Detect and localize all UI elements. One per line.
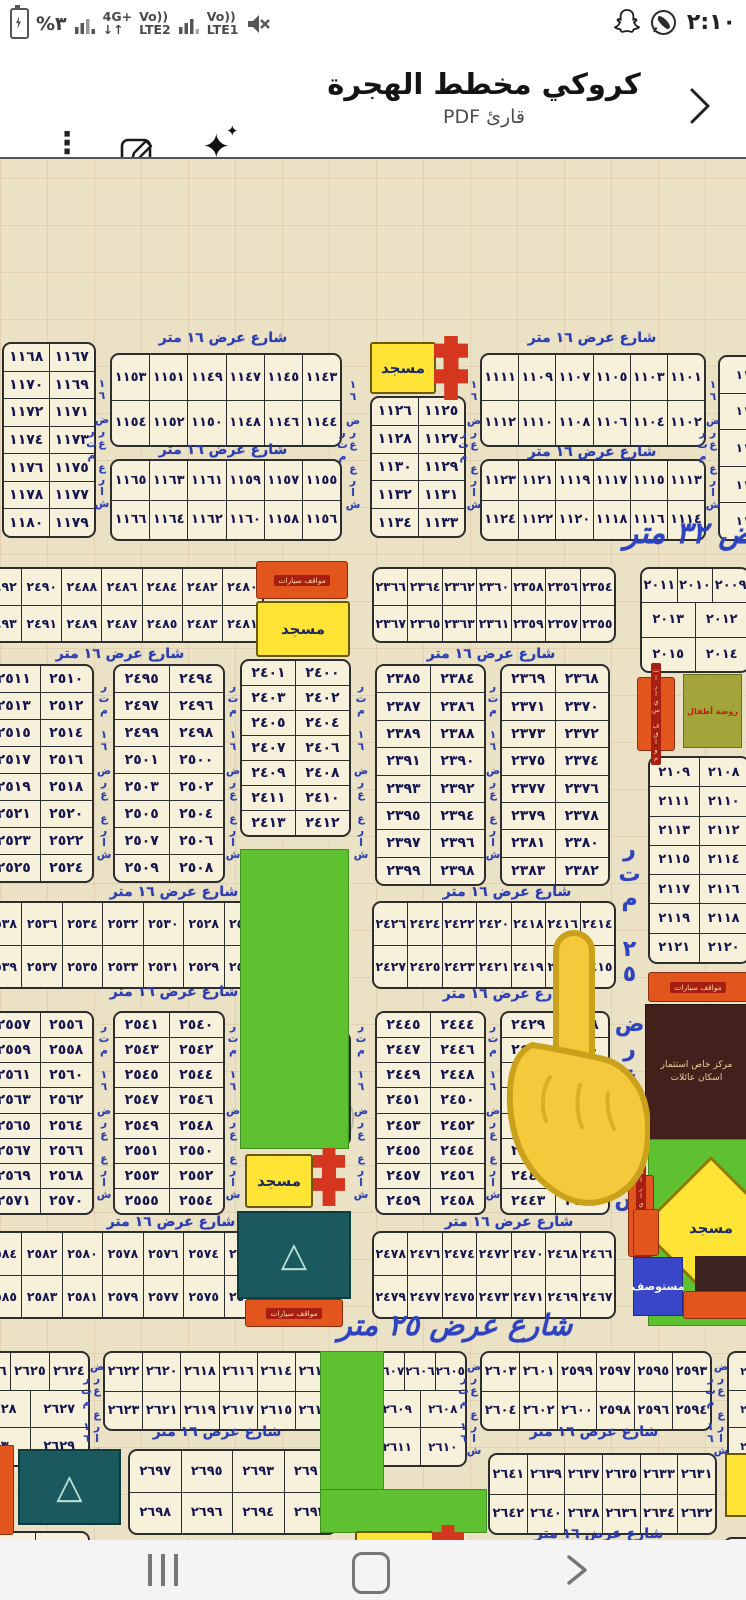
plot-cell: ٢٣٧٧ <box>502 776 555 802</box>
plot-cell: ٢٥٣٩ <box>0 946 21 988</box>
mosque-diamond-label: مسجد <box>689 1219 733 1237</box>
plot-cell: ٢٥١٧ <box>0 747 40 773</box>
plot-row: ٢٤٩٧٢٤٩٦ <box>115 692 223 719</box>
parking-box: مواقف سيارات <box>256 561 348 599</box>
snapchat-icon <box>614 8 640 36</box>
street-label: شارع عرض ١٦ متر <box>480 1425 708 1441</box>
plot-row: ٢٤٥١٢٤٥٠ <box>377 1087 484 1112</box>
plot-cell: ٢٣٩٧ <box>377 830 430 856</box>
plot-row: ٢٥٠٣٢٥٠٢ <box>115 773 223 800</box>
mosque-box: مسجد <box>256 601 350 657</box>
volte1-label: Vo))LTE1 <box>207 11 239 36</box>
volte2-label: Vo))LTE2 <box>139 11 171 36</box>
plot-block: ٢٥٨٤٢٥٨٢٢٥٨٠٢٥٧٨٢٥٧٦٢٥٧٤٢٥٧٢٢٥٨٥٢٥٨٣٢٥٨١… <box>0 1231 266 1319</box>
overflow-menu-button[interactable]: ⋮ <box>52 126 82 161</box>
plot-block: ١١٥٣١١٥١١١٤٩١١٤٧١١٤٥١١٤٣١١٥٤١١٥٢١١٥٠١١٤٨… <box>110 353 342 447</box>
park-area <box>240 849 349 1149</box>
plot-cell: ١١٥٠ <box>187 401 225 446</box>
plot-cell: ٢٤٩٦ <box>169 693 224 719</box>
plot-cell: ٢٣٥٦ <box>545 569 579 605</box>
plot-row: ١١ <box>720 466 746 503</box>
plot-row: ٢٣٧٧٢٣٧٦ <box>502 775 608 802</box>
plot-cell: ٢٥٤٦ <box>169 1088 224 1112</box>
plot-cell: ٢٥٣١ <box>143 946 183 988</box>
plot-row: ٢٥١٣٢٥١٢ <box>0 692 92 719</box>
plot-cell: ٢١١١ <box>650 787 699 815</box>
park-area <box>320 1489 487 1533</box>
street-label: شارع عرض ١٦ متر <box>352 671 366 871</box>
street-label: شارع عرض ١٦ متر <box>93 355 107 533</box>
plot-cell: ٢٣٨٢ <box>555 858 609 884</box>
plot-cell: ١١٤٧ <box>226 355 264 400</box>
plot-cell: ١١٥٨ <box>264 501 302 540</box>
street-label: شارع عرض ١٦ متر <box>344 359 358 531</box>
plot-cell: ٢٣٦١ <box>476 606 510 642</box>
plot-row: ٢٥٥٧٢٥٥٦ <box>0 1013 92 1037</box>
clinic-plot: مستوصف <box>633 1257 683 1316</box>
plot-cell: ٢٥٦٨ <box>40 1164 93 1188</box>
plot-row: ٢٤٠١٢٤٠٠ <box>242 661 349 685</box>
plot-cell: ٢٣٨٠ <box>555 830 609 856</box>
plot-cell: ١١٢٣ <box>482 461 518 500</box>
plot-row: ١١ <box>720 429 746 466</box>
plot-row: ١١٣٠١١٢٩ <box>372 453 464 481</box>
plot-row: ٢٤١١٢٤١٠ <box>242 785 349 810</box>
plot-cell: ٢٣٦٣ <box>442 606 476 642</box>
plot-block: ٢٤٧٨٢٤٧٦٢٤٧٤٢٤٧٢٢٤٧٠٢٤٦٨٢٤٦٦٢٤٧٩٢٤٧٧٢٤٧٥… <box>372 1231 616 1319</box>
plot-cell: ٢٥٩٥ <box>634 1353 672 1391</box>
plot-cell: ٢٥٥١ <box>115 1139 169 1163</box>
minaret-icon <box>434 336 468 400</box>
plot-row: ٢٤٤٧٢٤٤٦ <box>377 1037 484 1062</box>
parking-box: مواقف سيارات <box>648 972 746 1002</box>
plot-cell: ٢٠١٣ <box>642 603 695 636</box>
plot-block: ٢٦٢٥٢٥ <box>727 1351 746 1467</box>
plot-cell: ٢٤٠٤ <box>295 711 349 735</box>
plot-cell: ١١١٢ <box>482 401 518 446</box>
plot-cell: ٢٤٢٧ <box>374 946 407 988</box>
plot-cell: ١١٥٦ <box>302 501 340 540</box>
plot-cell: ٢١١٢ <box>699 817 746 845</box>
street-label: شارع عرض ١٦ متر <box>224 1015 238 1207</box>
plot-row: ٢٤٧٨٢٤٧٦٢٤٧٤٢٤٧٢٢٤٧٠٢٤٦٨٢٤٦٦ <box>374 1233 614 1275</box>
plot-cell: ٢٣٨٤ <box>430 666 484 692</box>
plot-row: ٢٣٨٣٢٣٨٢ <box>502 857 608 884</box>
plot-cell: ٢٤٨٩ <box>61 606 101 642</box>
plot-cell: ٢٥٥٢ <box>169 1164 224 1188</box>
plot-cell: ٢٦٢٢ <box>105 1353 142 1391</box>
plot-row: ٢٣٩٣٢٣٩٢ <box>377 775 484 802</box>
plot-row: ٢٤٩٥٢٤٩٤ <box>115 666 223 692</box>
plot-cell: ٢٥٠٠ <box>169 747 224 773</box>
plot-row: ٢٥٥٥٢٥٥٤ <box>115 1188 223 1213</box>
plot-cell: ٢٣٦٨ <box>555 666 609 692</box>
plot-cell: ٢٥٨٠ <box>62 1233 102 1275</box>
plot-cell: ١١١٩ <box>555 461 592 500</box>
plot-cell: ١١٣٣ <box>418 509 465 536</box>
plot-cell: ٢٥١٩ <box>0 774 40 800</box>
plot-row: ١١٦٦١١٦٤١١٦٢١١٦٠١١٥٨١١٥٦ <box>112 500 340 540</box>
plot-cell: ١١٥٥ <box>302 461 340 500</box>
street-label: شارع عرض ١٦ متر <box>352 1015 366 1207</box>
plot-cell: ٢٥١٢ <box>40 693 93 719</box>
status-bar: %٣ 4G+↓↑ Vo))LTE2 Vo))LTE1 <box>0 0 746 48</box>
app-subtitle: قارئ PDF <box>314 106 654 128</box>
plot-cell: ٢٣٧٤ <box>555 748 609 774</box>
parking-box-label: مواقف سيارات <box>651 663 661 765</box>
plot-row: ٢٥٤٥٢٥٤٤ <box>115 1062 223 1087</box>
plot-row: ٢٣٨٩٢٣٨٨ <box>377 720 484 747</box>
plot-cell: ٢٤٥١ <box>377 1088 430 1112</box>
back-button[interactable] <box>680 84 720 128</box>
plot-cell: ١١ <box>720 467 746 503</box>
plot-cell: ٢٥٥٩ <box>0 1038 40 1062</box>
nav-chevron-icon <box>558 1552 594 1588</box>
plot-cell: ٢٣٨٩ <box>377 721 430 747</box>
plot-cell: ٢٤٧٨ <box>374 1233 407 1275</box>
plot-cell: ٢٤٥٩ <box>377 1189 430 1213</box>
plot-cell: ٢٦٤١ <box>490 1455 527 1494</box>
plot-cell: ٢٦١٤ <box>257 1353 295 1391</box>
plot-cell: ٢٥ <box>729 1391 746 1428</box>
plot-cell: ٢٤٠٧ <box>242 736 295 760</box>
park-area <box>320 1351 384 1495</box>
plot-cell: ٢٣٩٩ <box>377 858 430 884</box>
plot-cell: ٢٤٠١ <box>242 661 295 685</box>
plot-row: ١١٨٠١١٧٩ <box>4 508 94 536</box>
plot-row: ٢٣٩٩٢٣٩٨ <box>377 857 484 884</box>
street-label: شارع عرض ١٦ متر <box>478 445 706 461</box>
plot-row: ٢٤٤٩٢٤٤٨ <box>377 1062 484 1087</box>
street-label: شارع عرض ١٦ متر <box>105 331 341 347</box>
plot-cell: ٢٤٩٨ <box>169 720 224 746</box>
plot-cell: ٢٦٩٣ <box>232 1451 284 1492</box>
plot-row: ٢٥١٩٢٥١٨ <box>0 773 92 800</box>
plot-row: ٢٤٥٩٢٤٥٨ <box>377 1188 484 1213</box>
plot-cell: ٢٦٠٦ <box>404 1353 434 1390</box>
plot-cell: ١١٦١ <box>187 461 225 500</box>
pointer-finger-emoji <box>498 927 650 1215</box>
plot-block: ٢٥٤١٢٥٤٠٢٥٤٣٢٥٤٢٢٥٤٥٢٥٤٤٢٥٤٧٢٥٤٦٢٥٤٩٢٥٤٨… <box>113 1011 225 1215</box>
plot-row: ٢٤٤٥٢٤٤٤ <box>377 1013 484 1037</box>
plot-cell: ٢٥٧٠ <box>40 1189 93 1213</box>
plot-cell: ١١٧٨ <box>4 482 49 509</box>
plot-cell: ١١١٧ <box>593 461 630 500</box>
plot-cell: ١١٤٣ <box>302 355 340 400</box>
plot-cell: ٢٥٢٠ <box>40 801 93 827</box>
plot-cell: ١١ <box>720 430 746 466</box>
plot-cell: ١١١٠ <box>518 401 555 446</box>
plot-cell: ٢٦٢٠ <box>142 1353 180 1391</box>
plot-row: ١١٣٢١١٣١ <box>372 480 464 508</box>
plot-row: ٢١١٣٢١١٢ <box>650 816 746 845</box>
plot-cell: ٢٥٠٥ <box>115 801 169 827</box>
plot-cell: ٢١١٤ <box>699 846 746 874</box>
plot-cell: ١١٤٥ <box>264 355 302 400</box>
plot-cell: ٢٥٢٤ <box>40 855 93 881</box>
plot-block: ٢٣٦٦٢٣٦٤٢٣٦٢٢٣٦٠٢٣٥٨٢٣٥٦٢٣٥٤٢٣٦٧٢٣٦٥٢٣٦٣… <box>372 567 616 643</box>
parking-box-label: مواقف سيارات <box>670 982 725 993</box>
plot-row: ٢١١٩٢١١٨ <box>650 903 746 932</box>
plot-cell: ٢٥٠٩ <box>115 855 169 881</box>
battery-percent: %٣ <box>36 13 67 35</box>
plot-cell: ٢٤٨٦ <box>101 569 141 605</box>
plot-row: ٢٣٦٦٢٣٦٤٢٣٦٢٢٣٦٠٢٣٥٨٢٣٥٦٢٣٥٤ <box>374 569 614 605</box>
plot-cell: ٢٦٢٨ <box>0 1391 30 1428</box>
street-label: شارع عرض ١٦ متر <box>385 1215 633 1231</box>
plot-cell: ٢٣٨٦ <box>430 693 484 719</box>
plot-cell: ٢٥١٤ <box>40 720 93 746</box>
plot-row: ٢٥٧١٢٥٧٠ <box>0 1188 92 1213</box>
plot-cell: ١١٦٣ <box>149 461 187 500</box>
plot-cell: ١١٦٠ <box>226 501 264 540</box>
parking-box: مواقف سيارات <box>245 1299 343 1327</box>
plot-cell: ٢٤٨٥ <box>142 606 182 642</box>
plot-cell: ٢٥٣٦ <box>21 903 61 945</box>
street-label: شارع عرض ١٦ متر <box>465 1355 479 1463</box>
plot-cell: ٢٤٨٢ <box>182 569 222 605</box>
plot-cell: ٢٥١٠ <box>40 666 93 692</box>
plot-block: ١١٢٦١١٢٥١١٢٨١١٢٧١١٣٠١١٢٩١١٣٢١١٣١١١٣٤١١٣٣ <box>370 396 466 538</box>
plot-cell: ١١٠١ <box>667 355 704 400</box>
plot-row: ٢٥٥٣٢٥٥٢ <box>115 1163 223 1188</box>
plot-cell: ٢٤٢٢ <box>442 903 476 945</box>
plot-row: ٢٦١١٢٦١٠ <box>375 1427 465 1465</box>
plot-cell: ٢٤٢٥ <box>407 946 441 988</box>
plot-cell: ٢٦٩٧ <box>130 1451 181 1492</box>
plot-cell: ١١٥١ <box>149 355 187 400</box>
plot-cell: ٢٥٣٤ <box>62 903 102 945</box>
plot-row: ٢٥٢٥٢٥٢٤ <box>0 854 92 881</box>
plot-cell: ٢٤٤٨ <box>430 1063 484 1087</box>
plot-row: ٢٥٦٩٢٥٦٨ <box>0 1163 92 1188</box>
plot-cell: ٢٣٧٦ <box>555 776 609 802</box>
plot-cell: ٢٣٥٩ <box>511 606 545 642</box>
plot-cell: ٢٤٥٥ <box>377 1139 430 1163</box>
plot-cell: ٢٣٦٢ <box>442 569 476 605</box>
plot-cell: ٢٣٦٠ <box>476 569 510 605</box>
plot-cell: ٢٦٣٥ <box>602 1455 640 1494</box>
plot-cell: ٢٥٦٩ <box>0 1164 40 1188</box>
plot-row: ٢٣٧٩٢٣٧٨ <box>502 802 608 829</box>
plot-row: ١١١١١١٠٩١١٠٧١١٠٥١١٠٣١١٠١ <box>482 355 704 400</box>
plot-cell: ٢٥٣٢ <box>102 903 142 945</box>
plot-row: ٢٣٧٥٢٣٧٤ <box>502 747 608 774</box>
plot-row: ٢٦٠٩٢٦٠٨ <box>375 1390 465 1428</box>
plot-block: ١١١١١١٠٩١١٠٧١١٠٥١١٠٣١١٠١١١١٢١١١٠١١٠٨١١٠٦… <box>480 353 706 447</box>
plot-row: ٢٥٦٥٢٥٦٤ <box>0 1113 92 1138</box>
plot-cell: ٢٤٦٨ <box>545 1233 579 1275</box>
plot-row: ٢٤١٣٢٤١٢ <box>242 810 349 835</box>
plot-cell: ١١٧١ <box>49 399 95 426</box>
plot-row: ٢٣٦٧٢٣٦٥٢٣٦٣٢٣٦١٢٣٥٩٢٣٥٧٢٣٥٥ <box>374 605 614 642</box>
plot-cell: ١١٧٩ <box>49 509 95 536</box>
plot-row: ٢٤٩٢٢٤٩٠٢٤٨٨٢٤٨٦٢٤٨٤٢٤٨٢٢٤٨٠ <box>0 569 262 605</box>
plot-cell: ٢٦٣٧ <box>564 1455 602 1494</box>
plot-cell: ٢٥٢١ <box>0 801 40 827</box>
plot-cell: ٢٥٢٣ <box>0 828 40 854</box>
plot-cell: ١١١٥ <box>630 461 667 500</box>
plot-cell: ٢١١٧ <box>650 875 699 903</box>
plot-cell: ٢٤٠٦ <box>295 736 349 760</box>
plot-cell: ١١٧٧ <box>49 482 95 509</box>
phone-screen: { "status": { "percent": "%٣", "net_a1":… <box>0 0 746 1600</box>
plot-cell: ٢٥٦٤ <box>40 1114 93 1138</box>
plot-cell: ٢٤٠٠ <box>295 661 349 685</box>
plot-cell: ٢٤٨٤ <box>142 569 182 605</box>
plot-row: ٢٥٨٤٢٥٨٢٢٥٨٠٢٥٧٨٢٥٧٦٢٥٧٤٢٥٧٢ <box>0 1233 264 1275</box>
plot-cell: ٢٦٢٧ <box>30 1391 89 1428</box>
plot-cell: ٢٣٥٥ <box>580 606 614 642</box>
signal-bars-icon <box>74 13 96 35</box>
plot-row: ١١٧٦١١٧٥ <box>4 453 94 481</box>
plot-cell: ٢٥٩٧ <box>596 1353 634 1391</box>
plot-row: ٢٣٦٩٢٣٦٨ <box>502 666 608 692</box>
kindergarten-plot: روضة أطفال <box>683 674 742 748</box>
plot-cell: ٢٤٩٢ <box>0 569 21 605</box>
plot-cell: ٢٤٧٢ <box>476 1233 510 1275</box>
street-label: شارع عرض ١٦ متر <box>704 359 718 531</box>
pdf-page[interactable]: © ١١٦٨١١٦٧١١٧٠١١٦٩١١٧٢١١٧١١١٧٤١١٧٣١١٧٦١١… <box>0 157 746 1542</box>
plot-cell: ٢٥٥٣ <box>115 1164 169 1188</box>
plot-cell: ٢٣٩٢ <box>430 776 484 802</box>
parking-box-label: مواقف سيارات <box>274 575 329 586</box>
plot-row: ٢٣٧٣٢٣٧٢ <box>502 720 608 747</box>
plot-cell: ٢٣٥٨ <box>511 569 545 605</box>
school-plot: △ <box>18 1449 121 1525</box>
plot-cell: ١١٦٦ <box>112 501 149 540</box>
plot-cell: ٢٦٢٣ <box>105 1392 142 1430</box>
plot-cell: ٢١١٠ <box>699 787 746 815</box>
plot-cell: ٢٦٠٤ <box>482 1392 519 1430</box>
plot-cell: ٢٠٠٩ <box>712 569 746 602</box>
plot-row: ٢٥١٥٢٥١٤ <box>0 719 92 746</box>
plot-cell: ٢٣٨٨ <box>430 721 484 747</box>
plot-cell: ٢٣٨٧ <box>377 693 430 719</box>
plot-row: ٢٦٠٣٢٦٠١٢٥٩٩٢٥٩٧٢٥٩٥٢٥٩٣ <box>482 1353 710 1391</box>
plot-cell: ٢٣٧٨ <box>555 803 609 829</box>
plot-cell: ٢٠١٥ <box>642 638 695 671</box>
plot-block: ٢٦٠٧٢٦٠٦٢٦٠٥٢٦٠٩٢٦٠٨٢٦١١٢٦١٠ <box>373 1351 467 1467</box>
app-header: كروكي مخطط الهجرة قارئ PDF ✦✦ ⋮ <box>0 48 746 158</box>
plot-cell: ٢٥١٨ <box>40 774 93 800</box>
plot-cell: ٢٣٦٤ <box>407 569 441 605</box>
plot-cell: ٢٠١٢ <box>695 603 746 636</box>
plot-row: ٢٥٢٣٢٥٢٢ <box>0 827 92 854</box>
plot-cell: ٢٥٥٠ <box>169 1139 224 1163</box>
plot-cell: ٢٥٨٢ <box>21 1233 61 1275</box>
plot-row: ٢٥٠٩٢٥٠٨ <box>115 854 223 881</box>
plot-block: ٢٦٢٢٢٦٢٠٢٦١٨٢٦١٦٢٦١٤٢٦١٢٢٦٢٣٢٦٢١٢٦١٩٢٦١٧… <box>103 1351 335 1431</box>
plot-cell: ٢٣٦٦ <box>374 569 407 605</box>
plot-cell: ٢٦٠٣ <box>482 1353 519 1391</box>
plot-cell: ٢٥١٦ <box>40 747 93 773</box>
plot-block: ٢٤٩٢٢٤٩٠٢٤٨٨٢٤٨٦٢٤٨٤٢٤٨٢٢٤٨٠٢٤٩٣٢٤٩١٢٤٨٩… <box>0 567 264 643</box>
plot-row: ٢٣٩١٢٣٩٠ <box>377 747 484 774</box>
plot-row: ٢٣٨٥٢٣٨٤ <box>377 666 484 692</box>
street-label: شارع عرض ١٦ متر <box>105 443 341 459</box>
plot-cell: ٢٤٥٠ <box>430 1088 484 1112</box>
plot-cell: ١١٠٦ <box>593 401 630 446</box>
plot-cell: ٢٥٢٩ <box>183 946 223 988</box>
plot-cell: ٢٣٩٠ <box>430 748 484 774</box>
plot-cell: ٢٤٥٨ <box>430 1189 484 1213</box>
plot-cell: ١١٦٩ <box>49 372 95 399</box>
street-label: شارع عرض ١٦ متر <box>465 359 479 531</box>
plot-row: ٢٤٩٣٢٤٩١٢٤٨٩٢٤٨٧٢٤٨٥٢٤٨٣٢٤٨١ <box>0 605 262 642</box>
street-label: شارع عرض ١٦ متر <box>484 1015 498 1207</box>
recents-button[interactable] <box>148 1554 178 1586</box>
plot-block: ٢٣٨٥٢٣٨٤٢٣٨٧٢٣٨٦٢٣٨٩٢٣٨٨٢٣٩١٢٣٩٠٢٣٩٣٢٣٩٢… <box>375 664 486 886</box>
plot-row: ٢٠١٣٢٠١٢ <box>642 602 746 636</box>
plot-block: ٢٤٠١٢٤٠٠٢٤٠٣٢٤٠٢٢٤٠٥٢٤٠٤٢٤٠٧٢٤٠٦٢٤٠٩٢٤٠٨… <box>240 659 351 837</box>
plot-cell: ٢٥٤٤ <box>169 1063 224 1087</box>
plot-cell: ١١١٣ <box>667 461 704 500</box>
plot-cell: ٢٥٦٠ <box>40 1063 93 1087</box>
plot-cell: ٢٤٠٩ <box>242 761 295 785</box>
clock: ٢:١٠ <box>687 10 736 35</box>
plot-cell: ٢٥٦٧ <box>0 1139 40 1163</box>
plot-cell: ١١٧٠ <box>4 372 49 399</box>
plot-cell: ٢٥٢٥ <box>0 855 40 881</box>
plot-row: ١١٥٣١١٥١١١٤٩١١٤٧١١٤٥١١٤٣ <box>112 355 340 400</box>
plot-row: ٢٥٦٣٢٥٦٢ <box>0 1087 92 1112</box>
plot-row: ١١٦٥١١٦٣١١٦١١١٥٩١١٥٧١١٥٥ <box>112 461 340 500</box>
mute-icon <box>245 11 271 37</box>
plot-cell: ٢٥١٣ <box>0 693 40 719</box>
plot-cell: ٢٣٥٧ <box>545 606 579 642</box>
plot-row: ٢١١١٢١١٠ <box>650 786 746 815</box>
plot-row: ٢٤٥٣٢٤٥٢ <box>377 1113 484 1138</box>
street-label: شارع عرض ١٦ متر <box>478 331 706 347</box>
clinic-plot-label: مستوصف <box>631 1280 684 1293</box>
plot-cell: ٢٥٣٨ <box>0 903 21 945</box>
plot-cell: ٢٥٥٧ <box>0 1013 40 1037</box>
plot-row: ١١٢٦١١٢٥ <box>372 398 464 425</box>
plot-row: ١١٢٣١١٢١١١١٩١١١٧١١١٥١١١٣ <box>482 461 704 500</box>
plot-cell: ١١٠٧ <box>555 355 592 400</box>
plot-cell: ٢١١٣ <box>650 817 699 845</box>
plot-row: ١١٥٤١١٥٢١١٥٠١١٤٨١١٤٦١١٤٤ <box>112 400 340 446</box>
plot-cell: ٢٦ <box>729 1353 746 1390</box>
plot-cell: ٢٣٧٣ <box>502 721 555 747</box>
signal-bars-icon <box>178 13 200 35</box>
nav-back-button[interactable] <box>558 1552 594 1588</box>
plot-cell: ٢٥٥٨ <box>40 1038 93 1062</box>
plot-cell: ٢٤٥٣ <box>377 1114 430 1138</box>
plot-cell: ٢٦١٦ <box>219 1353 257 1391</box>
plot-row: ٢٦٩٧٢٦٩٥٢٦٩٣٢٦٩١ <box>130 1451 335 1492</box>
plot-cell: ٢٦٣٩ <box>527 1455 565 1494</box>
plot-block: ١١٦٨١١٦٧١١٧٠١١٦٩١١٧٢١١٧١١١٧٤١١٧٣١١٧٦١١٧٥… <box>2 342 96 538</box>
street-label: شارع عرض ١٦ متر <box>88 1355 102 1463</box>
plot-cell: ٢٥٤٢ <box>169 1038 224 1062</box>
plot-cell: ٢١٠٨ <box>699 758 746 786</box>
home-button[interactable] <box>352 1552 390 1594</box>
plot-block: ٢٠١١٢٠١٠٢٠٠٩٢٠١٣٢٠١٢٢٠١٥٢٠١٤ <box>640 567 746 673</box>
plot-row: ٢٥٠١٢٥٠٠ <box>115 746 223 773</box>
plot-block: ٢٣٦٩٢٣٦٨٢٣٧١٢٣٧٠٢٣٧٣٢٣٧٢٢٣٧٥٢٣٧٤٢٣٧٧٢٣٧٦… <box>500 664 610 886</box>
plot-cell: ١١٦٢ <box>187 501 225 540</box>
plot-cell: ٢٦١٨ <box>180 1353 218 1391</box>
plot-cell: ٢٦٣٣ <box>640 1455 678 1494</box>
plot-cell: ٢٥٤١ <box>115 1013 169 1037</box>
plot-cell: ٢٥٦٦ <box>40 1139 93 1163</box>
plot-cell: ٢٤٨٧ <box>101 606 141 642</box>
plot-cell: ٢٥٠٦ <box>169 828 224 854</box>
plot-row: ٢٤٠٣٢٤٠٢ <box>242 685 349 710</box>
plot-block: ١١١١١١١١١١ <box>718 355 746 541</box>
